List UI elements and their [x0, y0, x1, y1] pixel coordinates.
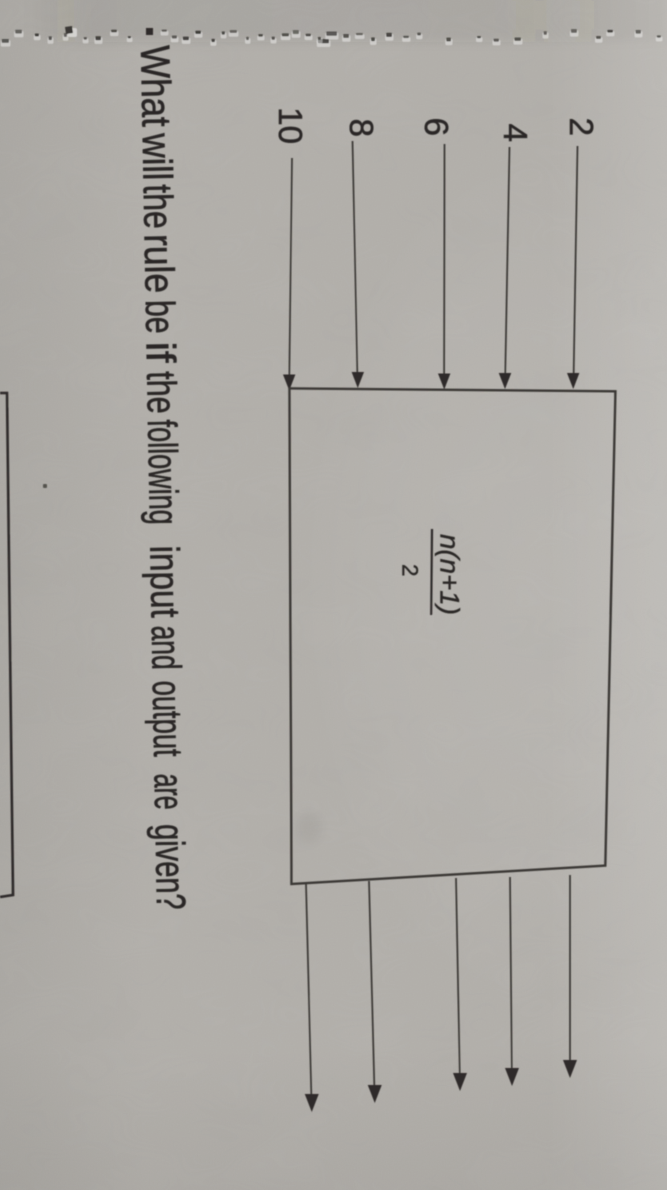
svg-text:following: following [139, 419, 187, 525]
svg-text:10: 10 [272, 107, 309, 144]
svg-text:the: the [135, 184, 182, 229]
svg-text:and: and [143, 625, 190, 670]
svg-text:2: 2 [398, 564, 423, 577]
svg-text:are: are [145, 773, 192, 810]
svg-text:the: the [138, 371, 185, 414]
svg-text:4: 4 [497, 124, 534, 142]
svg-text:be: be [137, 300, 184, 334]
svg-text:given?: given? [146, 824, 194, 910]
svg-text:input: input [141, 545, 188, 618]
svg-text:What: What [132, 45, 180, 128]
svg-text:n(n+1): n(n+1) [435, 534, 465, 615]
svg-text:rule: rule [136, 234, 183, 294]
svg-text:6: 6 [418, 118, 455, 136]
svg-text:8: 8 [343, 119, 380, 137]
svg-text:if: if [137, 341, 183, 363]
svg-text:will: will [134, 132, 181, 181]
svg-text:2: 2 [563, 118, 600, 136]
svg-text:output: output [144, 680, 191, 757]
